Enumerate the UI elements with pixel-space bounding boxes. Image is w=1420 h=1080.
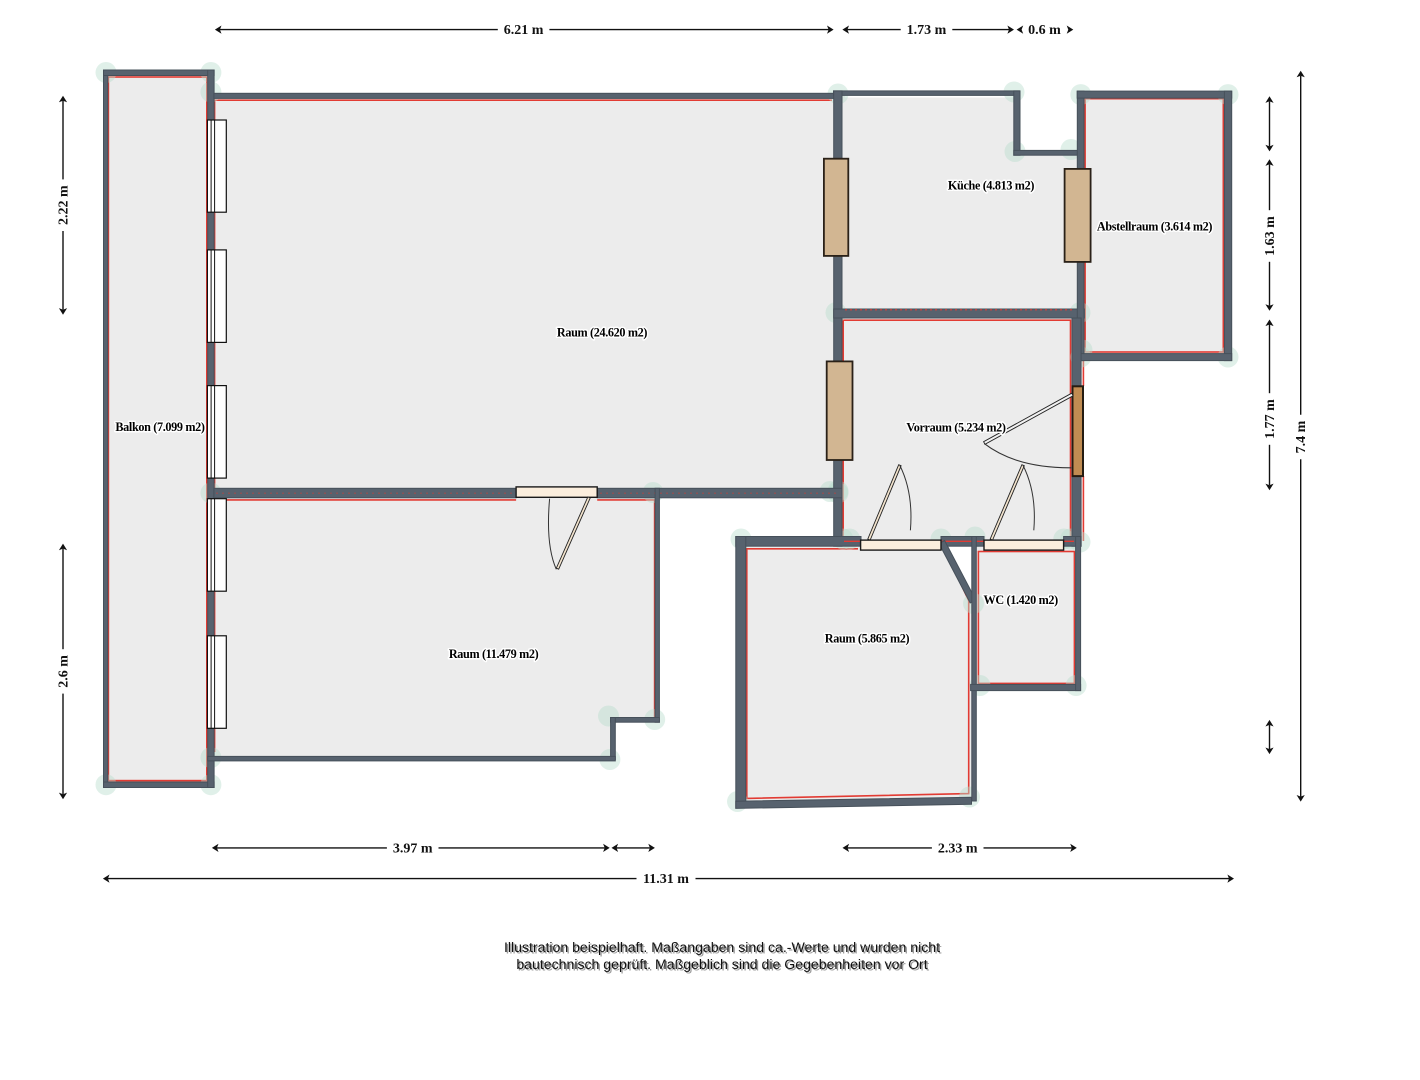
svg-text:Raum (5.865 m2): Raum (5.865 m2) (825, 632, 910, 646)
svg-text:Raum (24.620 m2): Raum (24.620 m2) (557, 326, 647, 340)
svg-text:Vorraum (5.234 m2): Vorraum (5.234 m2) (906, 421, 1005, 435)
svg-text:Abstellraum (3.614 m2): Abstellraum (3.614 m2) (1097, 220, 1212, 234)
svg-text:3.97 m: 3.97 m (393, 841, 433, 856)
svg-text:11.31 m: 11.31 m (643, 872, 689, 887)
svg-text:bautechnisch geprüft. Maßgebli: bautechnisch geprüft. Maßgeblich sind di… (516, 956, 927, 972)
svg-text:7.4 m: 7.4 m (1294, 420, 1309, 453)
svg-text:6.21 m: 6.21 m (504, 23, 544, 38)
svg-text:2.22 m: 2.22 m (57, 185, 72, 225)
svg-text:WC (1.420 m2): WC (1.420 m2) (984, 593, 1059, 607)
svg-text:Illustration beispielhaft. Maß: Illustration beispielhaft. Maßangaben si… (504, 939, 940, 955)
svg-text:1.63 m: 1.63 m (1263, 216, 1278, 256)
svg-text:Raum (11.479 m2): Raum (11.479 m2) (449, 647, 539, 661)
svg-text:2.33 m: 2.33 m (938, 841, 978, 856)
svg-text:Küche (4.813 m2): Küche (4.813 m2) (948, 179, 1034, 193)
svg-text:1.77 m: 1.77 m (1263, 399, 1278, 439)
svg-text:Balkon (7.099 m2): Balkon (7.099 m2) (115, 420, 204, 434)
svg-text:1.73 m: 1.73 m (907, 23, 947, 38)
svg-text:0.6 m: 0.6 m (1028, 23, 1061, 38)
svg-text:2.6 m: 2.6 m (57, 655, 72, 688)
